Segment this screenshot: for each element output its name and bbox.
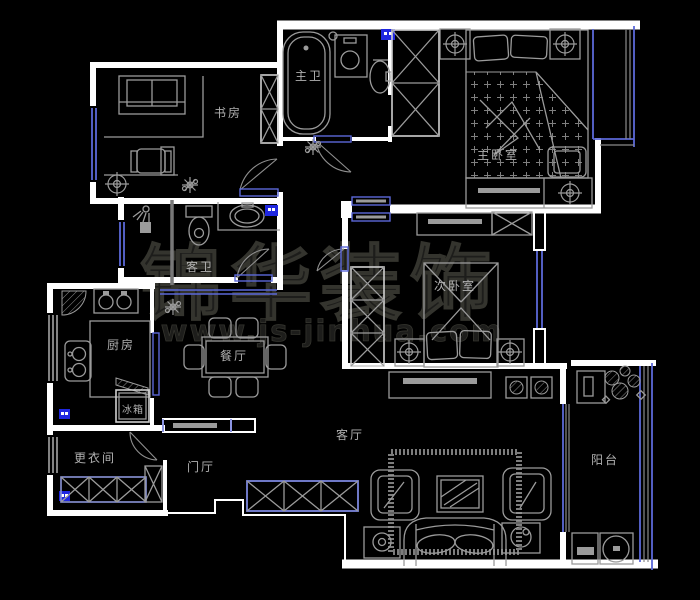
rug: [391, 452, 519, 552]
washing-machine: [600, 533, 633, 564]
socket-marker: [59, 409, 70, 419]
study-door: [240, 159, 277, 190]
plant-icon: [182, 177, 198, 193]
room-label-kitchen: 厨房: [107, 337, 135, 352]
balcony-sliding-door: [563, 404, 569, 532]
dressing-door: [130, 432, 157, 460]
floor-plan: 锦华装饰 www.js-jinhua.com: [0, 0, 700, 600]
balcony-cabinet: [577, 371, 605, 403]
room-label-study: 书房: [214, 105, 242, 120]
tv-cabinet: [389, 372, 491, 398]
sofa-bed: [119, 76, 185, 114]
nightstand: [550, 29, 580, 59]
laundry-cabinet: [572, 533, 598, 564]
master-wardrobe: [392, 30, 439, 136]
room-label-fridge: 冰箱: [122, 403, 144, 416]
room-label-master-bedroom: 主卧室: [477, 147, 519, 162]
kitchen-fixtures: [62, 289, 150, 422]
bathroom-sink: [329, 32, 367, 77]
dressing-furniture: [61, 466, 162, 502]
floor-plan-canvas: 锦华装饰 www.js-jinhua.com: [0, 0, 700, 600]
socket-marker: [265, 205, 278, 216]
bathtub: [283, 32, 330, 134]
study-furniture: [104, 75, 278, 196]
side-cabinet: [145, 466, 162, 502]
master-bath-door: [316, 141, 351, 172]
room-label-dining: 餐厅: [220, 348, 248, 363]
armchair: [503, 468, 551, 520]
plant-icon: [305, 139, 321, 155]
room-label-living: 客厅: [336, 427, 364, 442]
room-label-hall: 门厅: [187, 459, 215, 474]
hall-furniture: [247, 481, 358, 511]
stove: [94, 289, 138, 313]
desk-chair: [131, 147, 174, 175]
balcony-window: [640, 363, 652, 570]
speaker: [531, 377, 552, 398]
tv-cabinet: [417, 212, 532, 235]
plants: [602, 366, 645, 403]
master-bedroom-sliding-door: [352, 197, 390, 221]
room-label-dressing: 更衣间: [74, 450, 116, 465]
study-wardrobe: [261, 75, 278, 143]
room-label-balcony: 阳台: [591, 452, 619, 467]
room-label-bedroom2: 次卧室: [434, 278, 476, 293]
corner-shelf: [62, 291, 86, 315]
coffee-table: [437, 476, 483, 512]
entry-door: [163, 419, 231, 432]
speaker: [506, 377, 527, 398]
room-label-master-bath: 主卫: [295, 69, 323, 83]
armchair: [371, 470, 419, 520]
room-label-guest-bath: 客卫: [186, 259, 214, 274]
shoe-cabinet: [247, 481, 358, 511]
sofa: [404, 518, 506, 566]
master-bedroom-furniture: [392, 29, 592, 208]
dresser: [466, 178, 592, 208]
shower-head-icon: [133, 206, 151, 233]
kitchen-sink: [65, 341, 91, 381]
master-bedroom-bay-window: [593, 26, 634, 147]
dressing-wardrobe: [61, 477, 146, 502]
living-furniture: [364, 372, 552, 566]
